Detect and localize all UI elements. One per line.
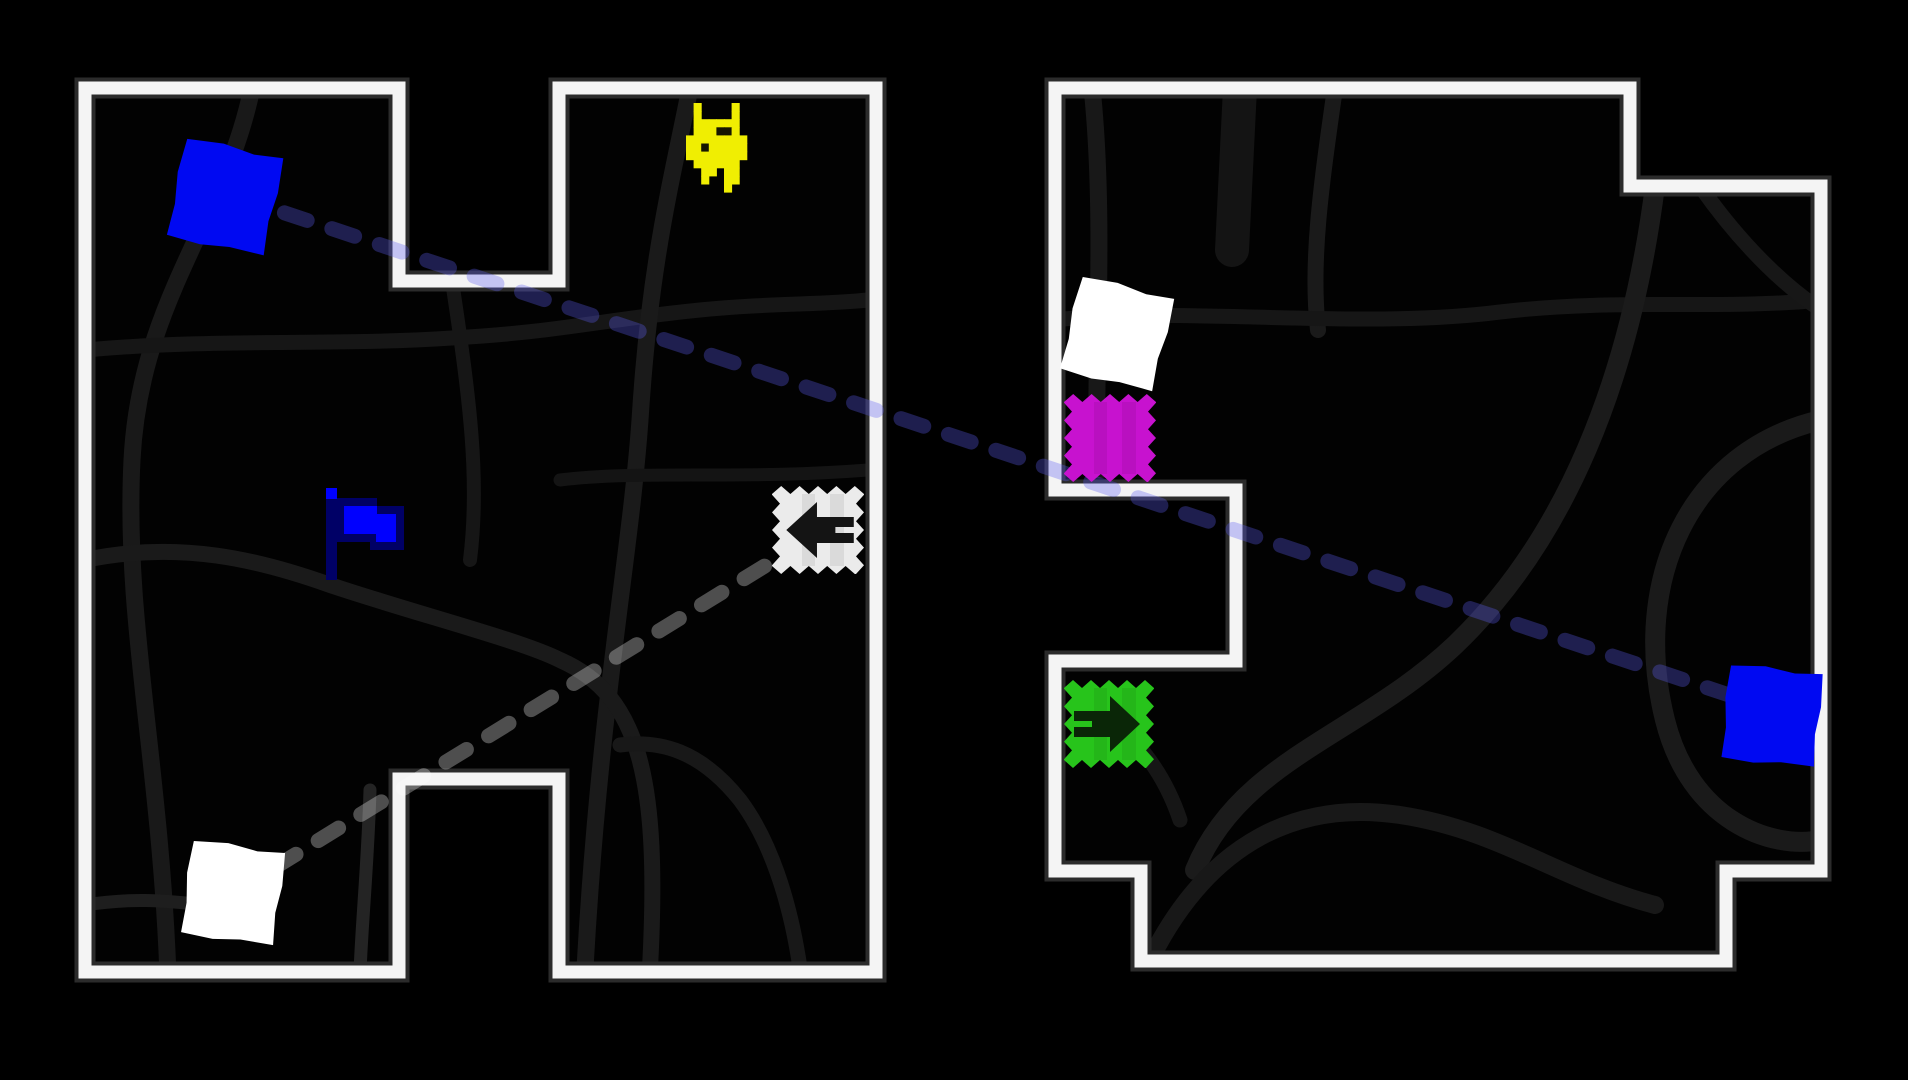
spinner-blue-right — [1719, 662, 1825, 769]
game-canvas[interactable] — [0, 0, 1908, 1080]
stamp-magenta — [1064, 394, 1156, 482]
teleportal-green — [1064, 680, 1154, 768]
spinner-white-left — [178, 838, 287, 947]
game-screen[interactable]: 2-13: TelePortals — [0, 0, 1908, 1080]
teleportal-white — [772, 486, 864, 574]
